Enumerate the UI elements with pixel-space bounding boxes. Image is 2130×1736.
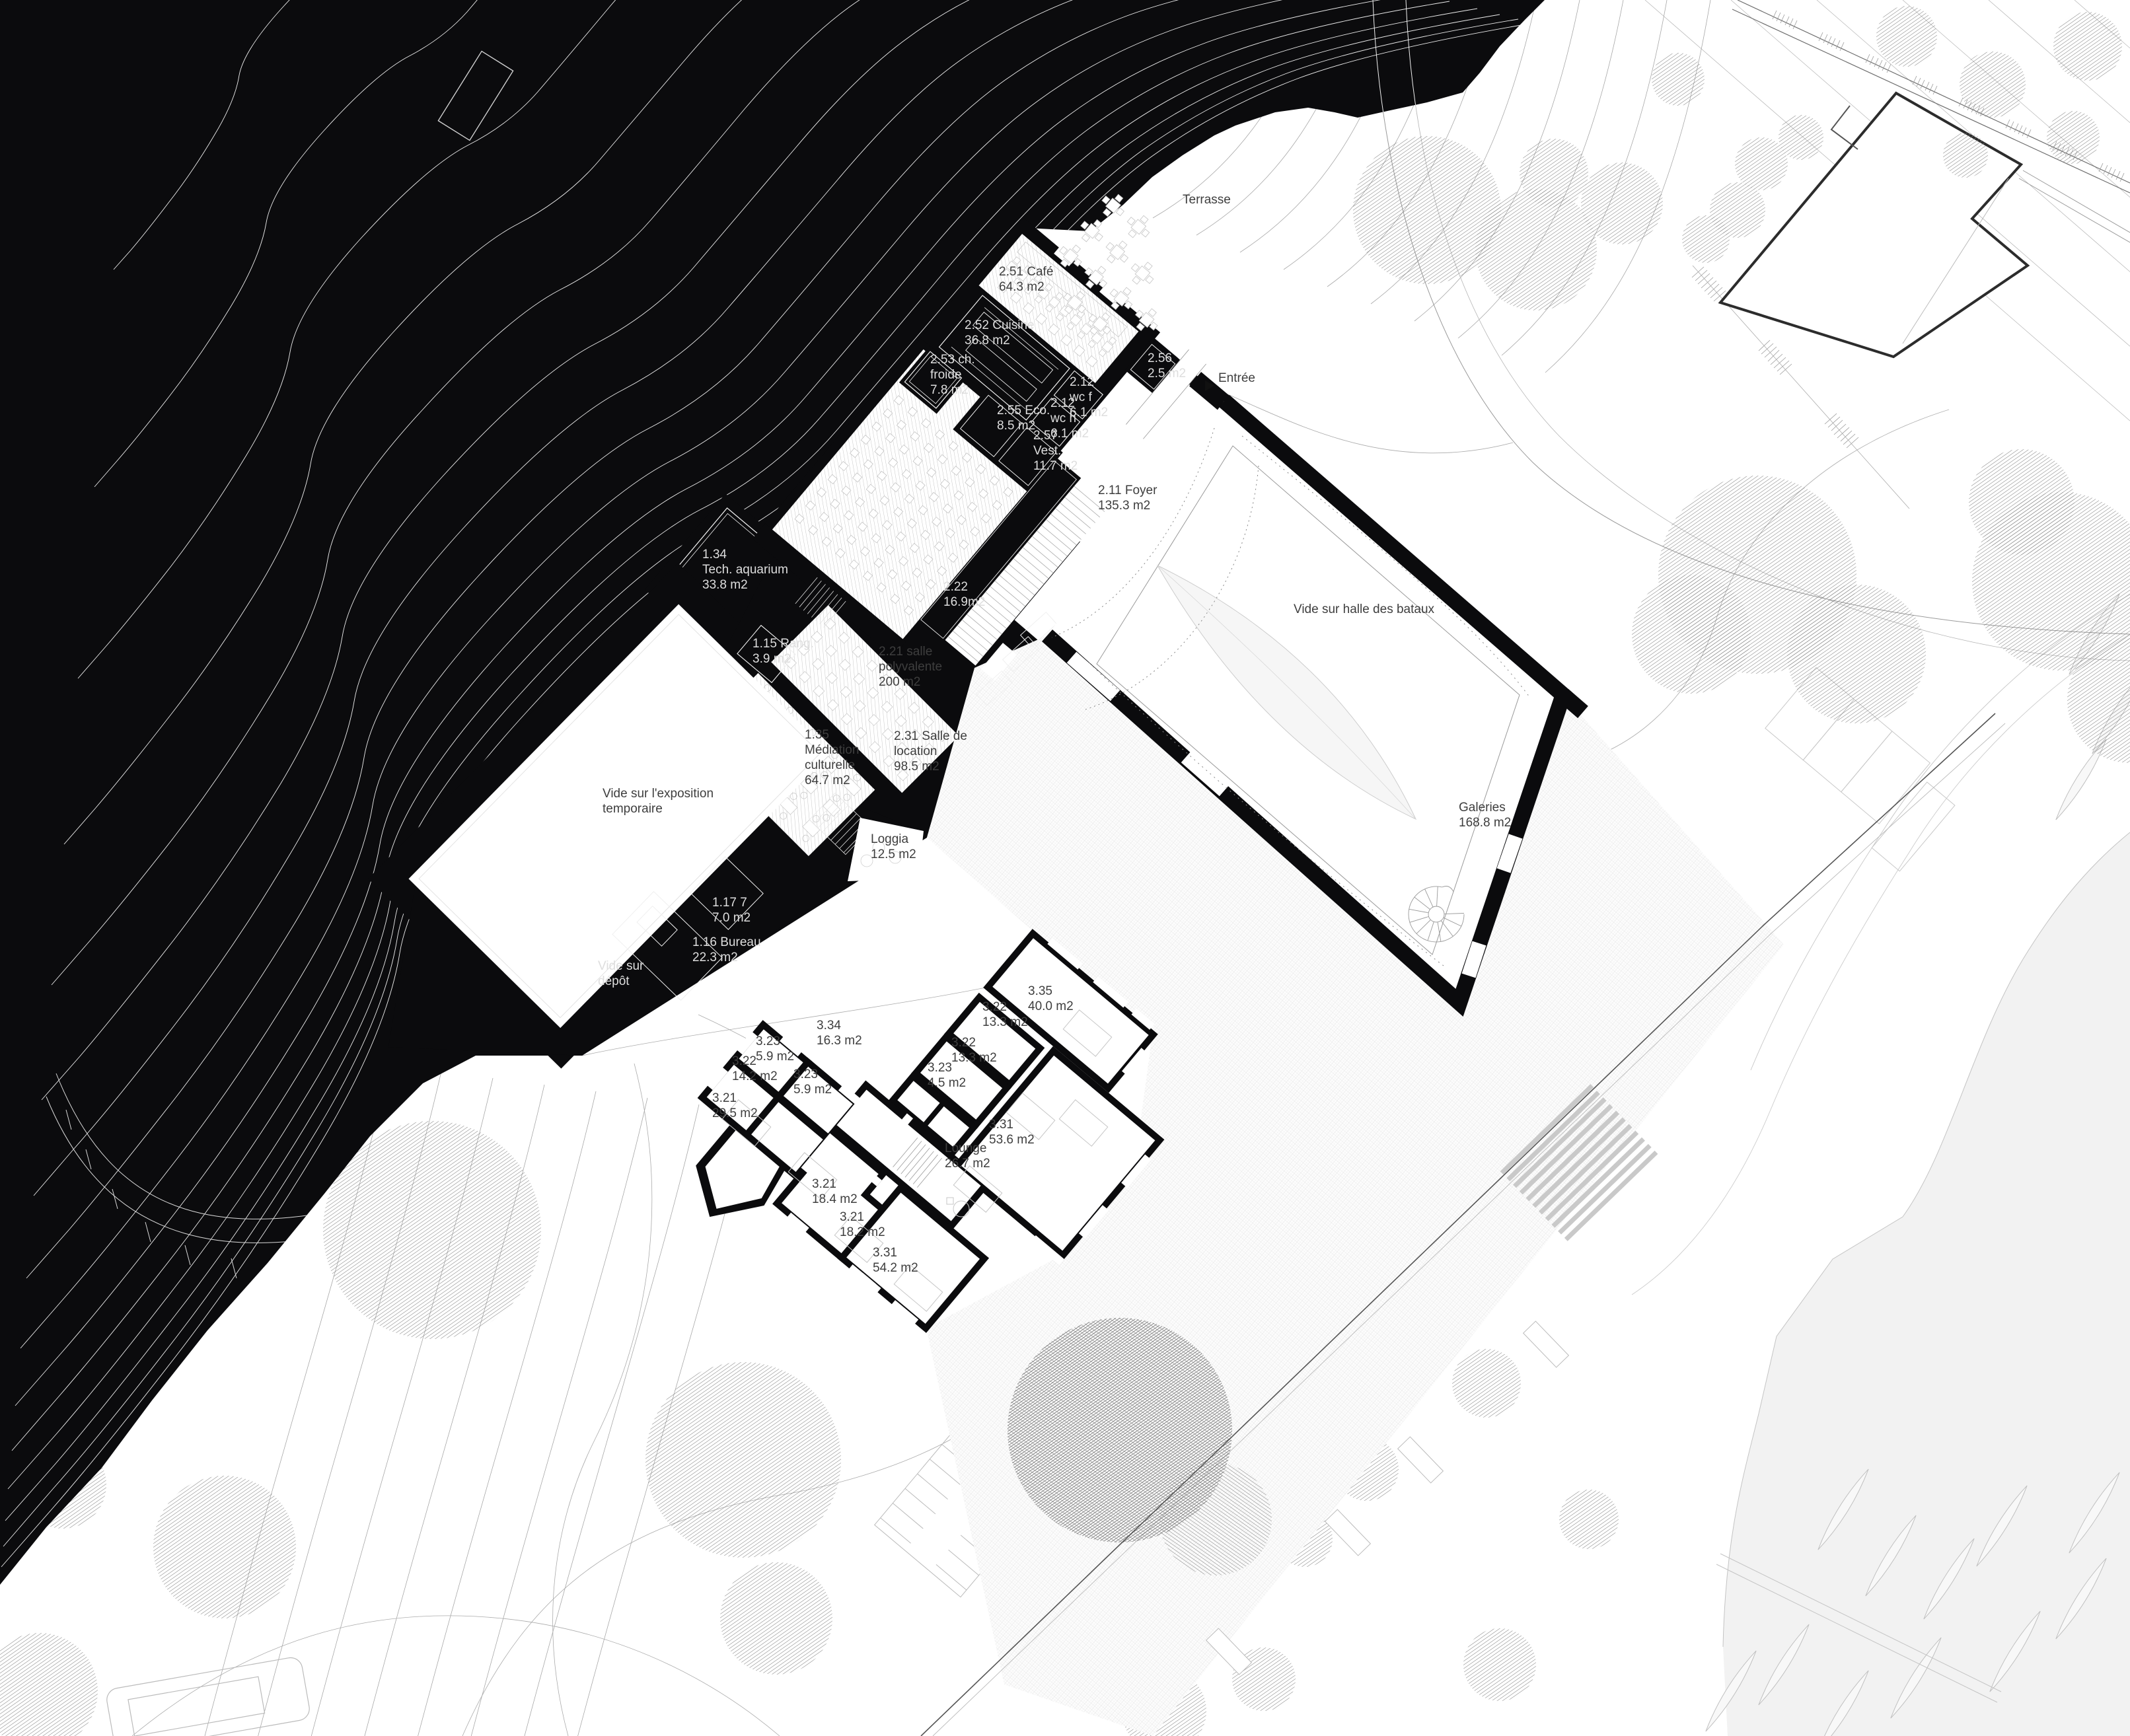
svg-text:Vide sur halle des bataux: Vide sur halle des bataux: [1294, 602, 1435, 616]
svg-text:Terrasse: Terrasse: [1183, 193, 1231, 207]
svg-text:Entrée: Entrée: [1218, 371, 1255, 385]
